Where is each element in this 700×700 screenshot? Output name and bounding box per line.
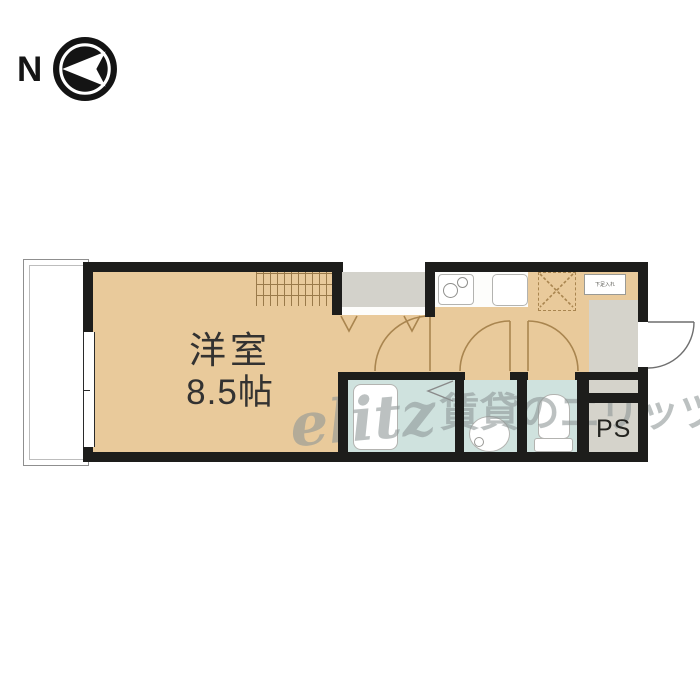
wall-bath-wash	[455, 380, 464, 452]
wall-left-upper	[83, 262, 93, 332]
window	[83, 332, 95, 447]
door-swing-overlay	[0, 0, 700, 700]
main-room-label: 洋室 8.5帖	[150, 330, 310, 413]
wall-wetblock-left	[338, 372, 348, 462]
wall-wetblock-top-1	[338, 372, 465, 380]
wall-toilet-ps	[577, 372, 589, 462]
wall-top-left	[83, 262, 343, 272]
wall-ps-divider	[589, 393, 638, 403]
compass-north-label: N	[17, 50, 42, 90]
wall-bottom	[83, 452, 648, 462]
entrance-door-arc	[648, 322, 694, 368]
wall-closet-left	[332, 262, 342, 315]
wall-wash-toilet	[517, 372, 527, 452]
pipe-shaft-label: PS	[596, 415, 631, 444]
wall-right-lower	[638, 367, 648, 462]
wall-closet-right	[425, 262, 435, 317]
watermark-text: 賃貸のエリッツ	[440, 380, 700, 438]
main-room-size: 8.5帖	[150, 373, 310, 413]
wall-left-lower	[83, 447, 93, 462]
wall-top-right	[427, 262, 648, 272]
floor-plan-page: N 下足入れ PS	[0, 0, 700, 700]
compass-icon	[52, 36, 118, 102]
wall-right-upper	[638, 262, 648, 322]
main-room-name: 洋室	[150, 330, 310, 373]
window-sash-line	[84, 390, 90, 391]
